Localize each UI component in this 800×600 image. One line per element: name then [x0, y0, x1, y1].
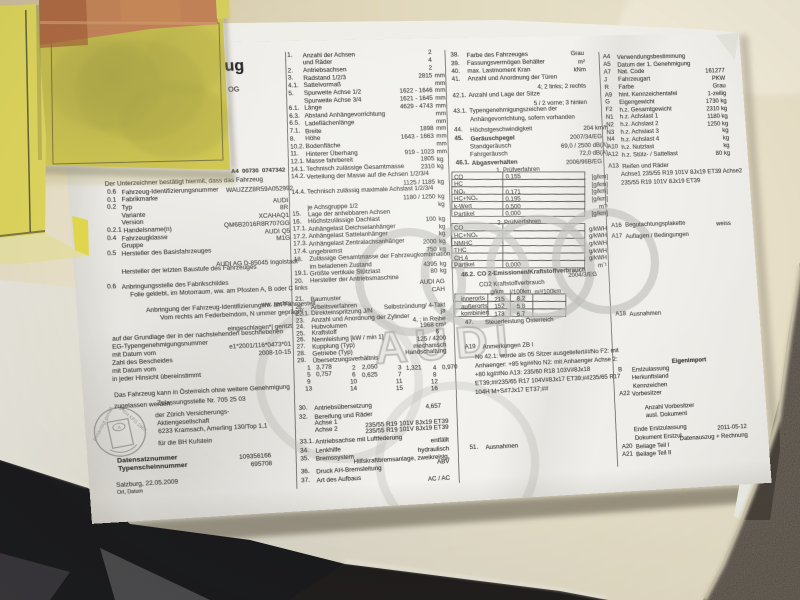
svg-text:A: A [116, 425, 122, 432]
svg-text:§ 404 KFG 1967: § 404 KFG 1967 [117, 406, 147, 434]
svg-text:Ermächtigt gemäß: Ermächtigt gemäß [92, 406, 115, 442]
